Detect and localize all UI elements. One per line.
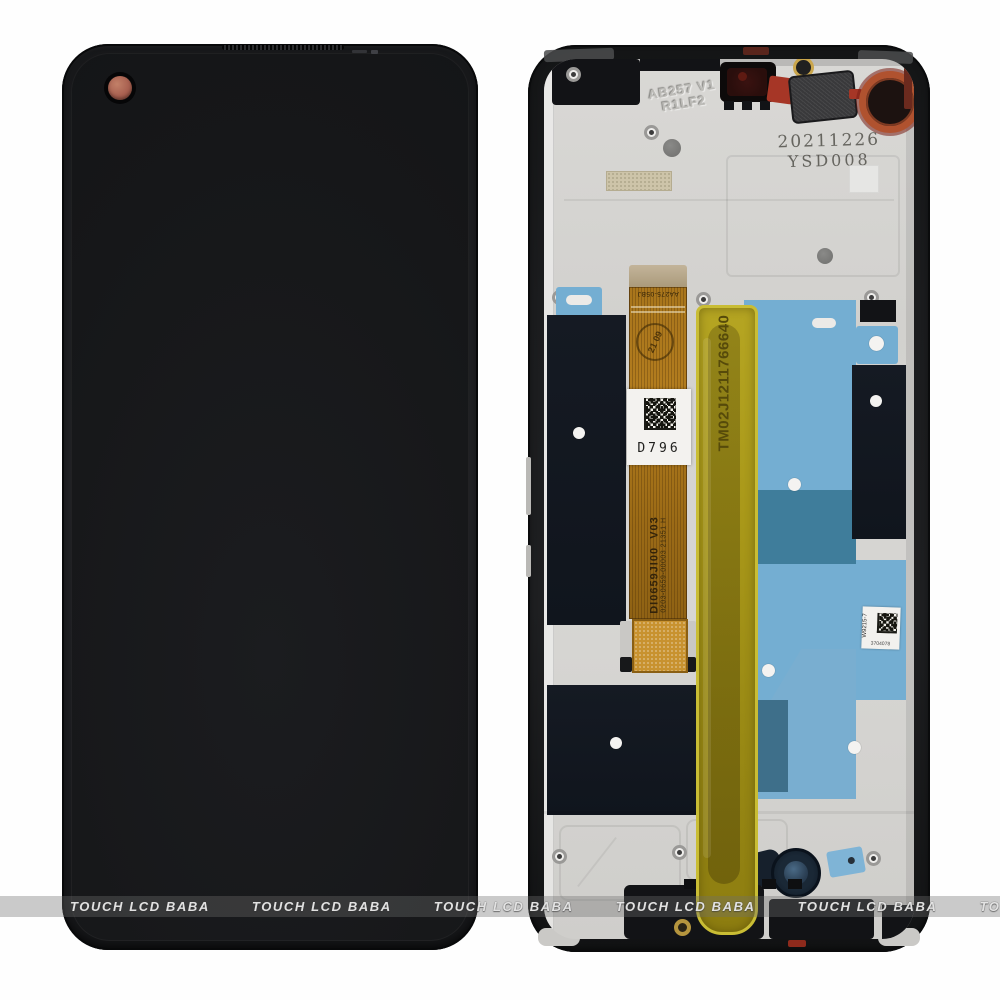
side-label-number: 3704078 — [861, 640, 899, 647]
connector-foot — [620, 657, 632, 672]
qr-code-icon — [877, 613, 898, 634]
side-label: W9215-7 3704078 — [861, 606, 900, 649]
adhesive-sheet-teal — [744, 490, 856, 564]
embossed-mold-code: AB257 V1 R1LF2 — [623, 74, 744, 120]
lcd-front-view — [62, 44, 478, 950]
earpiece-speaker-grille — [222, 45, 344, 50]
watermark-text: TOUCH LCD BABA — [616, 899, 756, 914]
qc-stamp-code: 21 09 — [646, 330, 665, 355]
frame-top-sensor-window — [743, 47, 769, 55]
adhesive-dot — [788, 478, 801, 491]
gold-screw-hole — [674, 919, 691, 936]
watermark-text: TOUCH LCD BABA — [798, 899, 938, 914]
side-label-code: W9215-7 — [862, 613, 869, 638]
plate-relief-square — [849, 165, 879, 193]
adhesive-dot — [870, 395, 882, 407]
rubber-dot — [817, 248, 833, 264]
screw-hole — [566, 67, 581, 82]
screw-hole — [672, 845, 687, 860]
adhesive-tab-slot — [812, 318, 836, 328]
lcd-frame-rear-view: AB257 V1 R1LF2 20211226 YSD008 — [528, 45, 930, 952]
camera-flex-blue — [826, 846, 866, 878]
flex-top-code: AA275-05BJ — [629, 290, 687, 297]
flex-part-text: DI0659JI00 V03 0203-0659-00003 21351 H — [649, 450, 668, 680]
adhesive-dot — [869, 336, 884, 351]
speaker-mesh — [788, 70, 859, 125]
stamp-date: 20211226 — [766, 129, 892, 152]
top-black-strip — [640, 59, 720, 71]
screw-hole — [866, 851, 881, 866]
back-plate: AB257 V1 R1LF2 20211226 YSD008 — [544, 59, 914, 939]
graphite-panel-left — [547, 315, 626, 625]
side-button-power — [526, 545, 531, 577]
flex-seam — [631, 311, 685, 313]
bottom-red-component — [788, 940, 806, 947]
mesh-sticker — [606, 171, 672, 191]
screw-hole — [644, 125, 659, 140]
tape-serial: TM02J1211766640 — [716, 252, 733, 514]
proximity-sensor-mark — [371, 50, 378, 54]
graphite-panel-right — [852, 365, 906, 539]
tape-highlight — [703, 338, 711, 858]
watermark-text: TOUCH LCD BABA — [70, 899, 210, 914]
adhesive-dot — [610, 737, 622, 749]
red-flex-patch — [904, 67, 912, 109]
module-tooth — [742, 101, 752, 110]
flex-seam — [631, 306, 685, 308]
module-tooth — [760, 101, 770, 110]
lcd-screen — [71, 53, 469, 941]
screw-hole — [552, 849, 567, 864]
qc-stamp: 21 09 — [636, 323, 674, 361]
graphite-patch-right — [860, 300, 896, 322]
adhesive-dot — [573, 427, 585, 439]
rubber-dot — [663, 139, 681, 157]
product-photo: AB257 V1 R1LF2 20211226 YSD008 — [0, 0, 1000, 1000]
qr-code-icon — [644, 398, 676, 430]
proximity-sensor-mark — [352, 50, 367, 53]
graphite-panel-left-lower — [547, 685, 699, 815]
watermark-text: TOUCH LCD BABA — [252, 899, 392, 914]
watermark-text: TOUCH LCD BABA — [979, 899, 1000, 914]
watermark-band: TOUCH LCD BABA TOUCH LCD BABA TOUCH LCD … — [0, 896, 1000, 917]
side-button-volume — [526, 457, 531, 515]
flex-serial-number: 0203-0659-00003 21351 H — [661, 450, 668, 680]
bottom-camera-boss — [771, 848, 821, 898]
adhesive-tab-slot — [566, 295, 592, 305]
adhesive-sheet-blue — [744, 300, 856, 490]
flex-dot — [847, 856, 855, 864]
flex-part-number: DI0659JI00 V03 — [649, 450, 661, 680]
adhesive-dot — [762, 664, 775, 677]
watermark-text: TOUCH LCD BABA — [434, 899, 574, 914]
plate-right-shade — [906, 59, 914, 939]
adhesive-dot — [848, 741, 861, 754]
punch-hole-camera — [108, 76, 132, 100]
